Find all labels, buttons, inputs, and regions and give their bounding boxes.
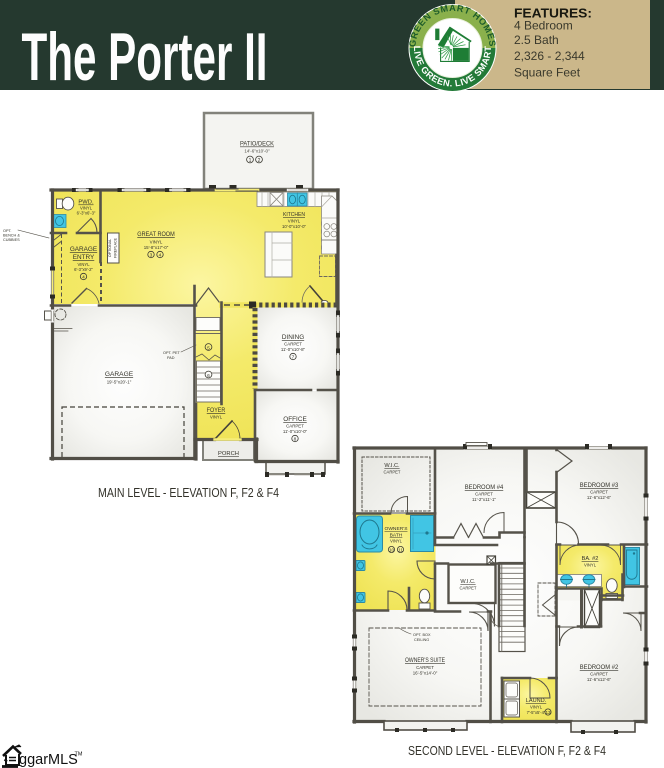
svg-text:VINYL: VINYL: [390, 539, 403, 544]
svg-text:The Porter II: The Porter II: [22, 19, 268, 95]
svg-text:ggarMLS: ggarMLS: [19, 752, 78, 768]
svg-text:CARPET: CARPET: [416, 665, 434, 670]
svg-text:11'-0"x10'-8": 11'-0"x10'-8": [281, 347, 306, 352]
svg-text:SECOND LEVEL - ELEVATION F, F2: SECOND LEVEL - ELEVATION F, F2 & F4: [408, 743, 606, 758]
svg-text:VINYL: VINYL: [584, 563, 597, 568]
svg-text:13: 13: [545, 710, 551, 715]
svg-text:7: 7: [292, 355, 295, 361]
svg-text:6'-3"x6'-3": 6'-3"x6'-3": [77, 210, 96, 215]
svg-text:OPT. BOX: OPT. BOX: [413, 633, 431, 637]
svg-text:11: 11: [398, 548, 403, 553]
svg-text:7'-5"x5'-4": 7'-5"x5'-4": [527, 710, 546, 715]
svg-text:BA. #2: BA. #2: [582, 556, 599, 562]
svg-text:19'-5"x20'-1": 19'-5"x20'-1": [107, 380, 132, 385]
svg-text:W.I.C.: W.I.C.: [384, 463, 400, 469]
svg-text:DINING: DINING: [282, 334, 304, 341]
svg-text:OFFICE: OFFICE: [283, 416, 306, 423]
svg-text:4: 4: [159, 253, 162, 259]
svg-text:OWNER'S: OWNER'S: [385, 526, 409, 532]
svg-text:11'-0"x10'-0": 11'-0"x10'-0": [283, 429, 308, 434]
svg-text:6: 6: [207, 373, 210, 379]
svg-text:2,326 - 2,344: 2,326 - 2,344: [514, 49, 585, 63]
svg-text:PATIO/DECK: PATIO/DECK: [240, 141, 275, 148]
svg-text:GARAGE: GARAGE: [70, 246, 97, 253]
svg-text:8: 8: [294, 437, 297, 443]
svg-text:VINYL: VINYL: [150, 240, 163, 245]
svg-text:FIREPLACE: FIREPLACE: [113, 237, 117, 258]
svg-text:OWNER'S SUITE: OWNER'S SUITE: [405, 657, 445, 664]
svg-text:14'-6"x10'-0": 14'-6"x10'-0": [244, 149, 270, 154]
svg-text:11'-6"x12'-6": 11'-6"x12'-6": [587, 677, 612, 682]
svg-text:MAIN LEVEL - ELEVATION F, F2 &: MAIN LEVEL - ELEVATION F, F2 & F4: [98, 485, 279, 500]
svg-text:BEDROOM #4: BEDROOM #4: [465, 484, 504, 491]
svg-text:BENCH &: BENCH &: [3, 234, 20, 238]
svg-text:CARPET: CARPET: [590, 672, 608, 677]
svg-text:11'-6"x12'-6": 11'-6"x12'-6": [587, 495, 612, 500]
svg-text:CARPET: CARPET: [460, 586, 477, 591]
svg-text:4: 4: [82, 275, 85, 281]
svg-text:CARPET: CARPET: [590, 490, 608, 495]
svg-text:VINYL: VINYL: [288, 219, 301, 224]
svg-text:FOYER: FOYER: [207, 407, 226, 414]
svg-text:2.5 Bath: 2.5 Bath: [514, 33, 559, 47]
svg-text:11'-2"x11'-1": 11'-2"x11'-1": [472, 497, 496, 502]
svg-text:Square Feet: Square Feet: [514, 66, 581, 80]
svg-text:GREAT ROOM: GREAT ROOM: [137, 231, 175, 238]
svg-text:PORCH: PORCH: [218, 451, 239, 457]
svg-text:VINYL: VINYL: [210, 415, 223, 420]
svg-text:2: 2: [258, 158, 261, 164]
svg-text:LAUND.: LAUND.: [526, 698, 547, 704]
svg-text:CEILING: CEILING: [414, 638, 429, 642]
svg-text:OPTIONAL: OPTIONAL: [108, 239, 112, 257]
svg-text:CUBBIES: CUBBIES: [3, 238, 20, 242]
svg-text:10: 10: [389, 548, 395, 553]
svg-text:BEDROOM #3: BEDROOM #3: [580, 482, 619, 489]
svg-text:VINYL: VINYL: [530, 705, 543, 710]
svg-text:GARAGE: GARAGE: [105, 371, 134, 378]
svg-text:OPT.: OPT.: [3, 229, 11, 233]
svg-text:PAD: PAD: [167, 356, 175, 360]
svg-text:W.I.C.: W.I.C.: [460, 579, 476, 585]
svg-text:16'-5"x14'-0": 16'-5"x14'-0": [413, 670, 438, 675]
svg-text:CARPET: CARPET: [284, 342, 302, 347]
svg-text:OPT. PET: OPT. PET: [163, 351, 181, 355]
svg-text:TM: TM: [75, 752, 83, 758]
svg-text:10'-0"x10'-0": 10'-0"x10'-0": [282, 224, 307, 229]
svg-text:CARPET: CARPET: [475, 492, 493, 497]
svg-text:ENTRY: ENTRY: [73, 254, 95, 261]
svg-text:CARPET: CARPET: [286, 424, 304, 429]
svg-text:5: 5: [207, 345, 210, 351]
svg-text:CARPET: CARPET: [384, 470, 401, 475]
svg-text:15'-8"x17'-0": 15'-8"x17'-0": [144, 245, 169, 250]
svg-text:1: 1: [249, 158, 252, 164]
svg-text:KITCHEN: KITCHEN: [283, 212, 305, 218]
svg-text:BEDROOM #2: BEDROOM #2: [580, 664, 619, 671]
svg-text:4 Bedroom: 4 Bedroom: [514, 19, 573, 33]
svg-text:3: 3: [150, 253, 153, 259]
svg-text:6'-3"x9'-2": 6'-3"x9'-2": [74, 267, 93, 272]
